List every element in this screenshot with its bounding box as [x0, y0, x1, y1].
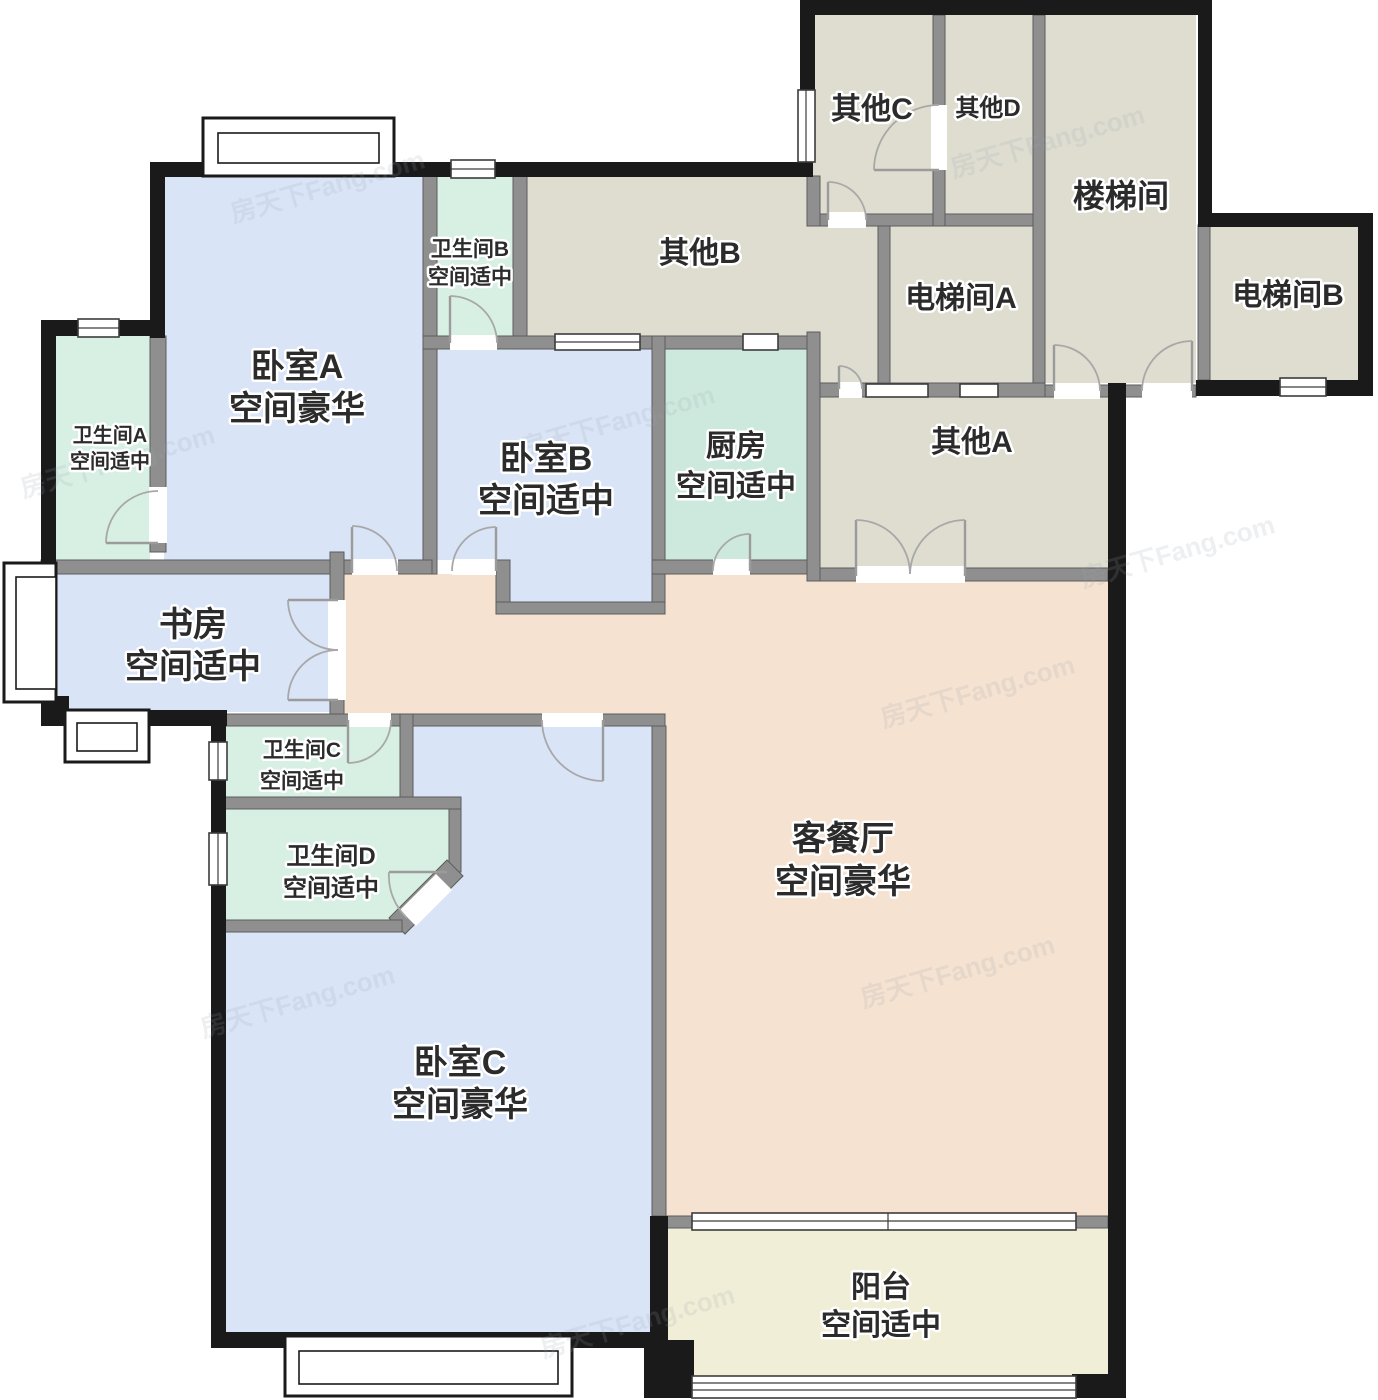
- balcony-railing: [692, 1376, 1076, 1398]
- room-name: 卧室A: [251, 347, 344, 386]
- room-size: 空间适中: [283, 874, 379, 902]
- room-size: 空间豪华: [392, 1085, 528, 1124]
- room-name: 客餐厅: [792, 819, 894, 858]
- room-size: 空间适中: [260, 769, 344, 793]
- room-name: 卫生间B: [431, 237, 509, 261]
- door-gap: [713, 559, 750, 575]
- floor-plan: 房天下Fang.com 房天下Fang.com 房天下Fang.com 房天下F…: [0, 0, 1378, 1400]
- bay-window-inner: [77, 723, 137, 751]
- wall: [1198, 0, 1212, 225]
- door-gap: [542, 713, 603, 727]
- window: [743, 334, 778, 350]
- room-size: 空间适中: [70, 449, 150, 473]
- wall: [513, 176, 527, 349]
- wall: [225, 797, 461, 809]
- room-size: 空间适中: [478, 482, 614, 520]
- door-gap: [931, 105, 947, 170]
- bay-window-inner: [16, 577, 56, 689]
- elevator-a-label: 电梯间A: [905, 282, 1017, 315]
- room-name: 书房: [159, 606, 227, 644]
- window: [866, 384, 928, 397]
- other-a-label: 其他A: [931, 426, 1013, 459]
- bath-b-floor: [427, 176, 513, 350]
- door-gap: [839, 382, 862, 398]
- wall: [1358, 213, 1373, 396]
- wall: [807, 332, 820, 581]
- wall: [1198, 225, 1210, 380]
- door-gap: [149, 487, 167, 543]
- door-gap: [450, 335, 497, 350]
- wall: [150, 162, 165, 338]
- room-size: 空间豪华: [775, 862, 911, 901]
- wall: [222, 920, 402, 932]
- wall: [652, 726, 666, 1216]
- room-name: 卫生间D: [286, 843, 375, 870]
- wall: [644, 1340, 694, 1398]
- room-size: 空间适中: [428, 265, 512, 289]
- wall: [449, 809, 461, 872]
- door-gap: [828, 212, 866, 228]
- wall: [1198, 213, 1372, 227]
- room-name: 阳台: [851, 1270, 911, 1304]
- wall: [1033, 15, 1045, 383]
- room-name: 卧室B: [500, 439, 593, 478]
- bay-window-inner: [299, 1351, 558, 1384]
- wall: [878, 226, 890, 383]
- wall: [800, 0, 1212, 15]
- door-gap: [352, 559, 398, 575]
- room-size: 空间豪华: [229, 389, 365, 428]
- wall: [400, 714, 413, 809]
- door-gap: [452, 559, 496, 575]
- bay-window-inner: [218, 133, 379, 163]
- window: [960, 384, 998, 397]
- wall: [1108, 383, 1126, 1398]
- room-size: 空间适中: [676, 470, 796, 503]
- elevator-b-label: 电梯间B: [1232, 279, 1344, 312]
- stairwell-label: 楼梯间: [1073, 178, 1169, 214]
- wall: [496, 602, 665, 614]
- wall: [807, 176, 820, 226]
- door-gap: [1142, 383, 1192, 399]
- door-gap: [1054, 383, 1100, 399]
- wall: [800, 0, 815, 95]
- wall: [423, 176, 437, 574]
- other-d-label: 其他D: [955, 95, 1020, 122]
- floor-plan-canvas: 房天下Fang.com 房天下Fang.com 房天下Fang.com 房天下F…: [0, 0, 1378, 1400]
- room-size: 空间适中: [125, 648, 261, 686]
- other-c-label: 其他C: [831, 93, 913, 126]
- other-b-label: 其他B: [659, 237, 741, 270]
- room-name: 卧室C: [414, 1043, 507, 1082]
- room-name: 卫生间A: [73, 424, 147, 447]
- wall: [41, 320, 56, 567]
- room-size: 空间适中: [821, 1309, 941, 1342]
- room-name: 卫生间C: [263, 738, 341, 762]
- door-gap: [348, 713, 391, 727]
- room-name: 厨房: [706, 430, 766, 463]
